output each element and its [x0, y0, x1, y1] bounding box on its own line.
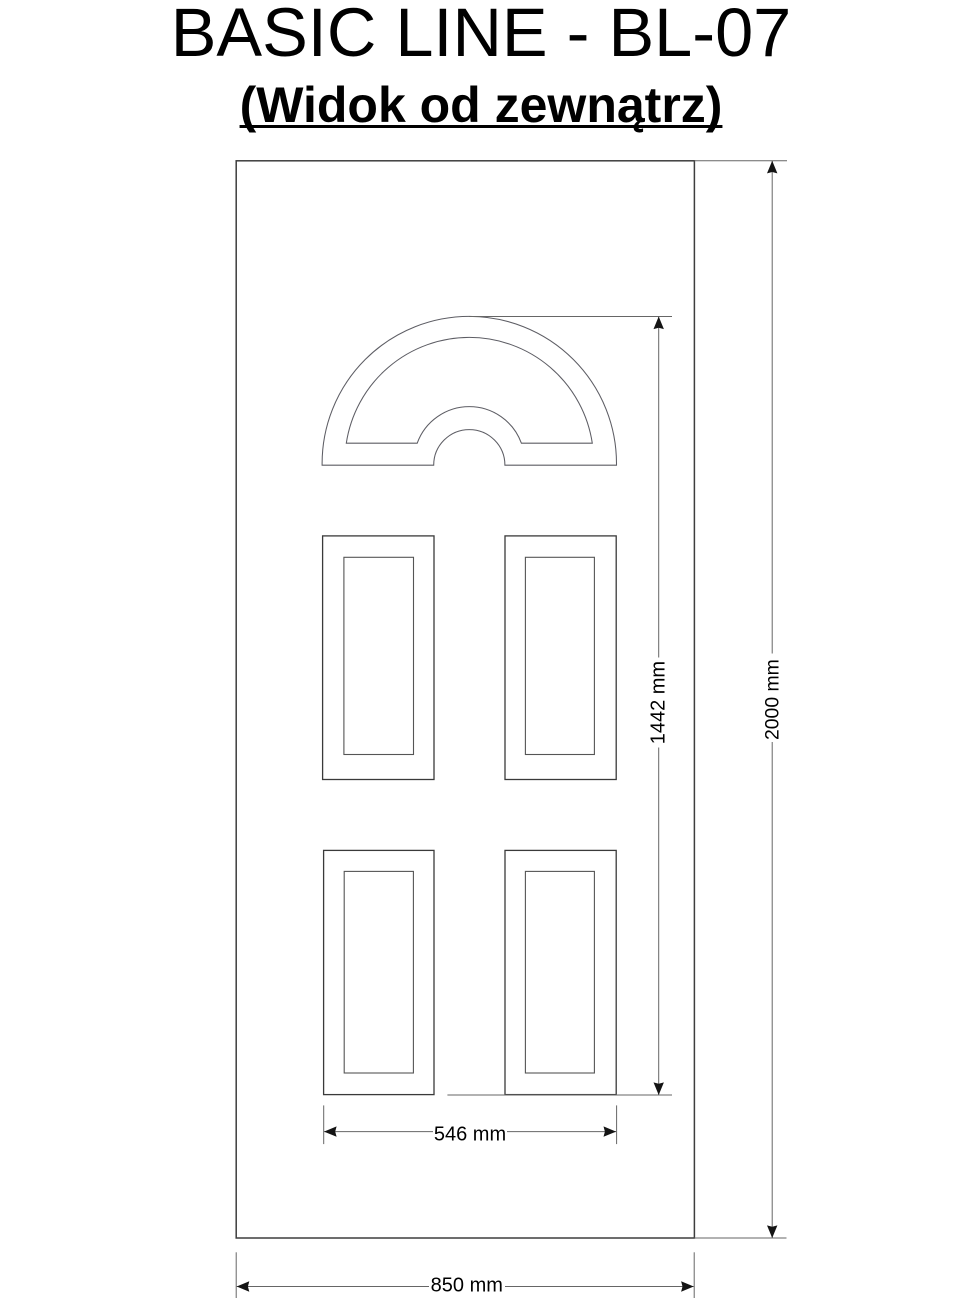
- svg-text:546 mm: 546 mm: [434, 1123, 506, 1145]
- svg-text:1442 mm: 1442 mm: [648, 661, 670, 744]
- svg-text:2000 mm: 2000 mm: [761, 659, 783, 740]
- svg-text:850 mm: 850 mm: [431, 1274, 503, 1296]
